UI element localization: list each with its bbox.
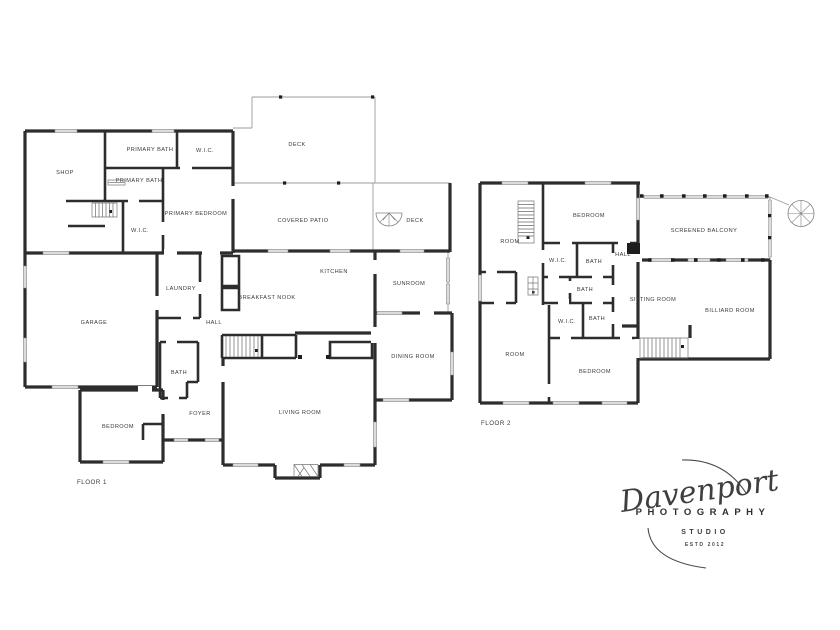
- room-label-bedroom-upper: BEDROOM: [573, 213, 605, 219]
- room-label-wic-lower: W.I.C.: [131, 228, 149, 234]
- room-label-bath-upper: BATH: [586, 259, 602, 265]
- room-label-deck-right: DECK: [406, 218, 423, 224]
- room-label-dining-room: DINING ROOM: [391, 354, 434, 360]
- room-label-wic-upper: W.I.C.: [196, 148, 214, 154]
- room-label-hall-f1: HALL: [206, 320, 222, 326]
- room-label-room-upper: ROOM: [500, 239, 519, 245]
- room-label-wic-upper-f2: W.I.C.: [549, 258, 567, 264]
- room-label-wic-lower-f2: W.I.C.: [558, 319, 576, 325]
- room-label-living-room: LIVING ROOM: [279, 410, 321, 416]
- room-label-sunroom: SUNROOM: [393, 281, 425, 287]
- room-label-bedroom-lower: BEDROOM: [579, 369, 611, 375]
- room-label-billiard-room: BILLIARD ROOM: [705, 308, 755, 314]
- logo-photography-text: PHOTOGRAPHY: [636, 507, 771, 518]
- logo-studio-text: STUDIO: [681, 529, 728, 536]
- room-label-covered-patio: COVERED PATIO: [277, 218, 328, 224]
- floor1-title: FLOOR 1: [77, 479, 107, 486]
- floor2-title: FLOOR 2: [481, 420, 511, 427]
- room-label-primary-bedroom: PRIMARY BEDROOM: [165, 211, 228, 217]
- room-label-sitting-room: SITTING ROOM: [630, 297, 676, 303]
- room-label-deck-top: DECK: [288, 142, 305, 148]
- room-label-breakfast-nook: BREAKFAST NOOK: [238, 295, 295, 301]
- room-label-foyer: FOYER: [189, 411, 211, 417]
- room-label-bedroom-f1: BEDROOM: [102, 424, 134, 430]
- room-label-kitchen: KITCHEN: [320, 269, 348, 275]
- floor2-spiral-stair-icon: [788, 201, 814, 227]
- room-label-shop: SHOP: [56, 170, 74, 176]
- room-label-bath-lower: BATH: [589, 316, 605, 322]
- room-label-hall-f2: HALL: [615, 252, 631, 258]
- logo-established-text: ESTD 2012: [685, 542, 725, 548]
- room-label-screened-balcony: SCREENED BALCONY: [671, 228, 738, 234]
- room-label-bath-middle: BATH: [577, 287, 593, 293]
- room-label-laundry: LAUNDRY: [166, 286, 196, 292]
- room-label-room-lower: ROOM: [505, 352, 524, 358]
- room-label-primary-bath-lower: PRIMARY BATH: [116, 178, 163, 184]
- room-label-bath-f1: BATH: [171, 370, 187, 376]
- floorplan-canvas: SHOP PRIMARY BATH W.I.C. PRIMARY BATH PR…: [0, 0, 840, 630]
- room-label-primary-bath-upper: PRIMARY BATH: [127, 147, 174, 153]
- room-label-garage: GARAGE: [81, 320, 108, 326]
